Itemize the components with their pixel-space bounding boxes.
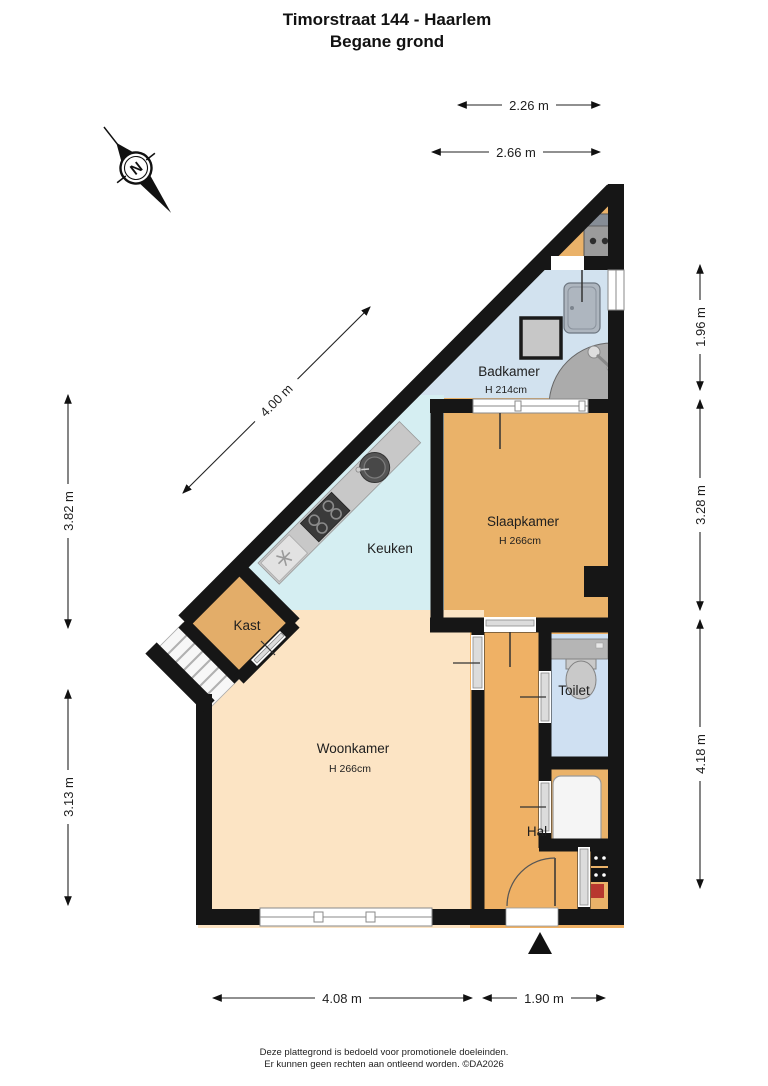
boiler-icon — [553, 776, 601, 846]
dim-label: 4.08 m — [322, 991, 362, 1006]
dim-label: 1.96 m — [693, 307, 708, 347]
page-subtitle: Begane grond — [330, 32, 444, 51]
floor-plan-svg: 2.26 m 2.66 m 3.82 m 3.13 m 1.96 — [0, 0, 768, 1086]
label-kast: Kast — [233, 618, 260, 633]
label-woonkamer-height: H 266cm — [329, 763, 371, 775]
label-woonkamer: Woonkamer — [317, 741, 390, 756]
dim-label: 2.26 m — [509, 98, 549, 113]
dimension-bottom-right: 1.90 m — [483, 990, 605, 1006]
label-slaapkamer: Slaapkamer — [487, 514, 560, 529]
label-hal: Hal — [527, 824, 547, 839]
dim-label: 4.18 m — [693, 734, 708, 774]
footer-disclaimer-1: Deze plattegrond is bedoeld voor promoti… — [260, 1047, 509, 1058]
footer-disclaimer-2: Er kunnen geen rechten aan ontleend word… — [264, 1059, 503, 1070]
meterkast-door — [578, 847, 590, 907]
label-slaapkamer-height: H 266cm — [499, 535, 541, 547]
label-toilet: Toilet — [558, 683, 590, 698]
dim-label: 3.13 m — [61, 777, 76, 817]
dim-label: 3.28 m — [693, 485, 708, 525]
chimney-block — [584, 566, 610, 597]
dimension-left-lower: 3.13 m — [60, 690, 76, 905]
label-badkamer: Badkamer — [478, 364, 540, 379]
entrance-marker-icon — [528, 932, 552, 954]
dim-label: 1.90 m — [524, 991, 564, 1006]
page-title: Timorstraat 144 - Haarlem — [283, 10, 492, 29]
woonkamer-window — [260, 908, 432, 926]
compass-icon: N — [85, 112, 190, 227]
label-badkamer-height: H 214cm — [485, 384, 527, 396]
badkamer-facade-window — [608, 270, 624, 310]
dimension-top-inner: 2.26 m — [458, 97, 600, 113]
dimension-top-outer: 2.66 m — [432, 144, 600, 160]
dim-label: 4.00 m — [257, 381, 296, 420]
dim-label: 2.66 m — [496, 145, 536, 160]
dimension-right-middle: 3.28 m — [692, 400, 708, 610]
dimension-right-top: 1.96 m — [692, 265, 708, 390]
shower-icon — [521, 318, 561, 358]
dimension-bottom-left: 4.08 m — [213, 990, 472, 1006]
label-keuken: Keuken — [367, 541, 413, 556]
dim-label: 3.82 m — [61, 491, 76, 531]
dimension-right-bottom: 4.18 m — [692, 620, 708, 888]
dimension-left-upper: 3.82 m — [60, 395, 76, 628]
